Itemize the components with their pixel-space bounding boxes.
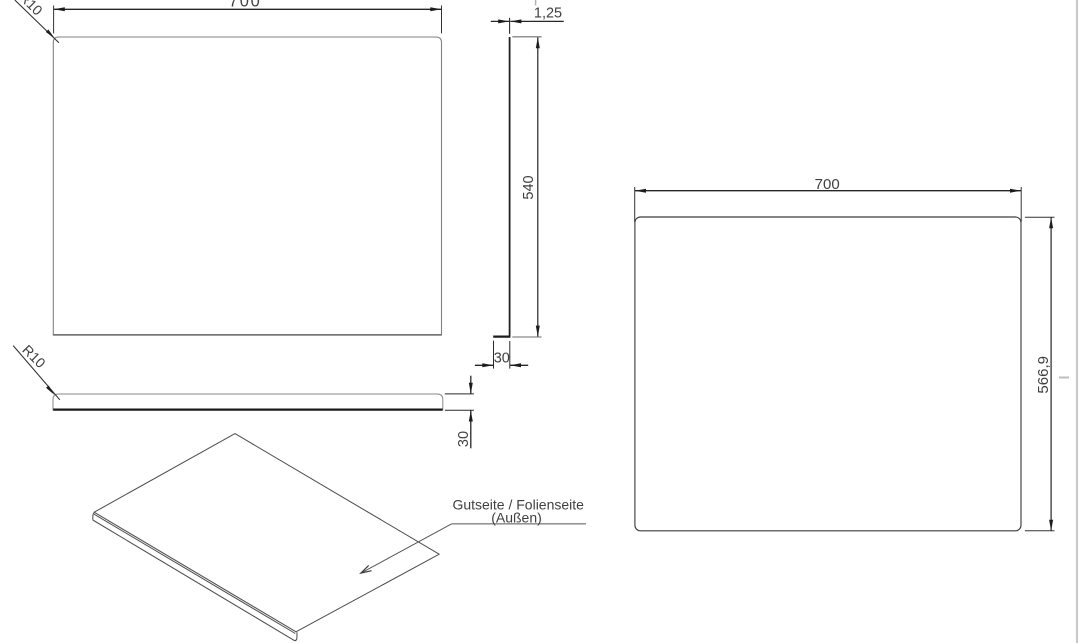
svg-text:(Außen): (Außen) — [491, 510, 542, 526]
svg-text:700: 700 — [815, 176, 840, 193]
svg-text:30: 30 — [456, 431, 472, 447]
svg-text:R10: R10 — [19, 342, 49, 372]
svg-text:30: 30 — [494, 351, 510, 367]
svg-text:700: 700 — [229, 0, 262, 10]
svg-text:540: 540 — [521, 175, 537, 199]
svg-text:566,9: 566,9 — [1035, 356, 1052, 394]
svg-text:1,25: 1,25 — [534, 6, 562, 22]
